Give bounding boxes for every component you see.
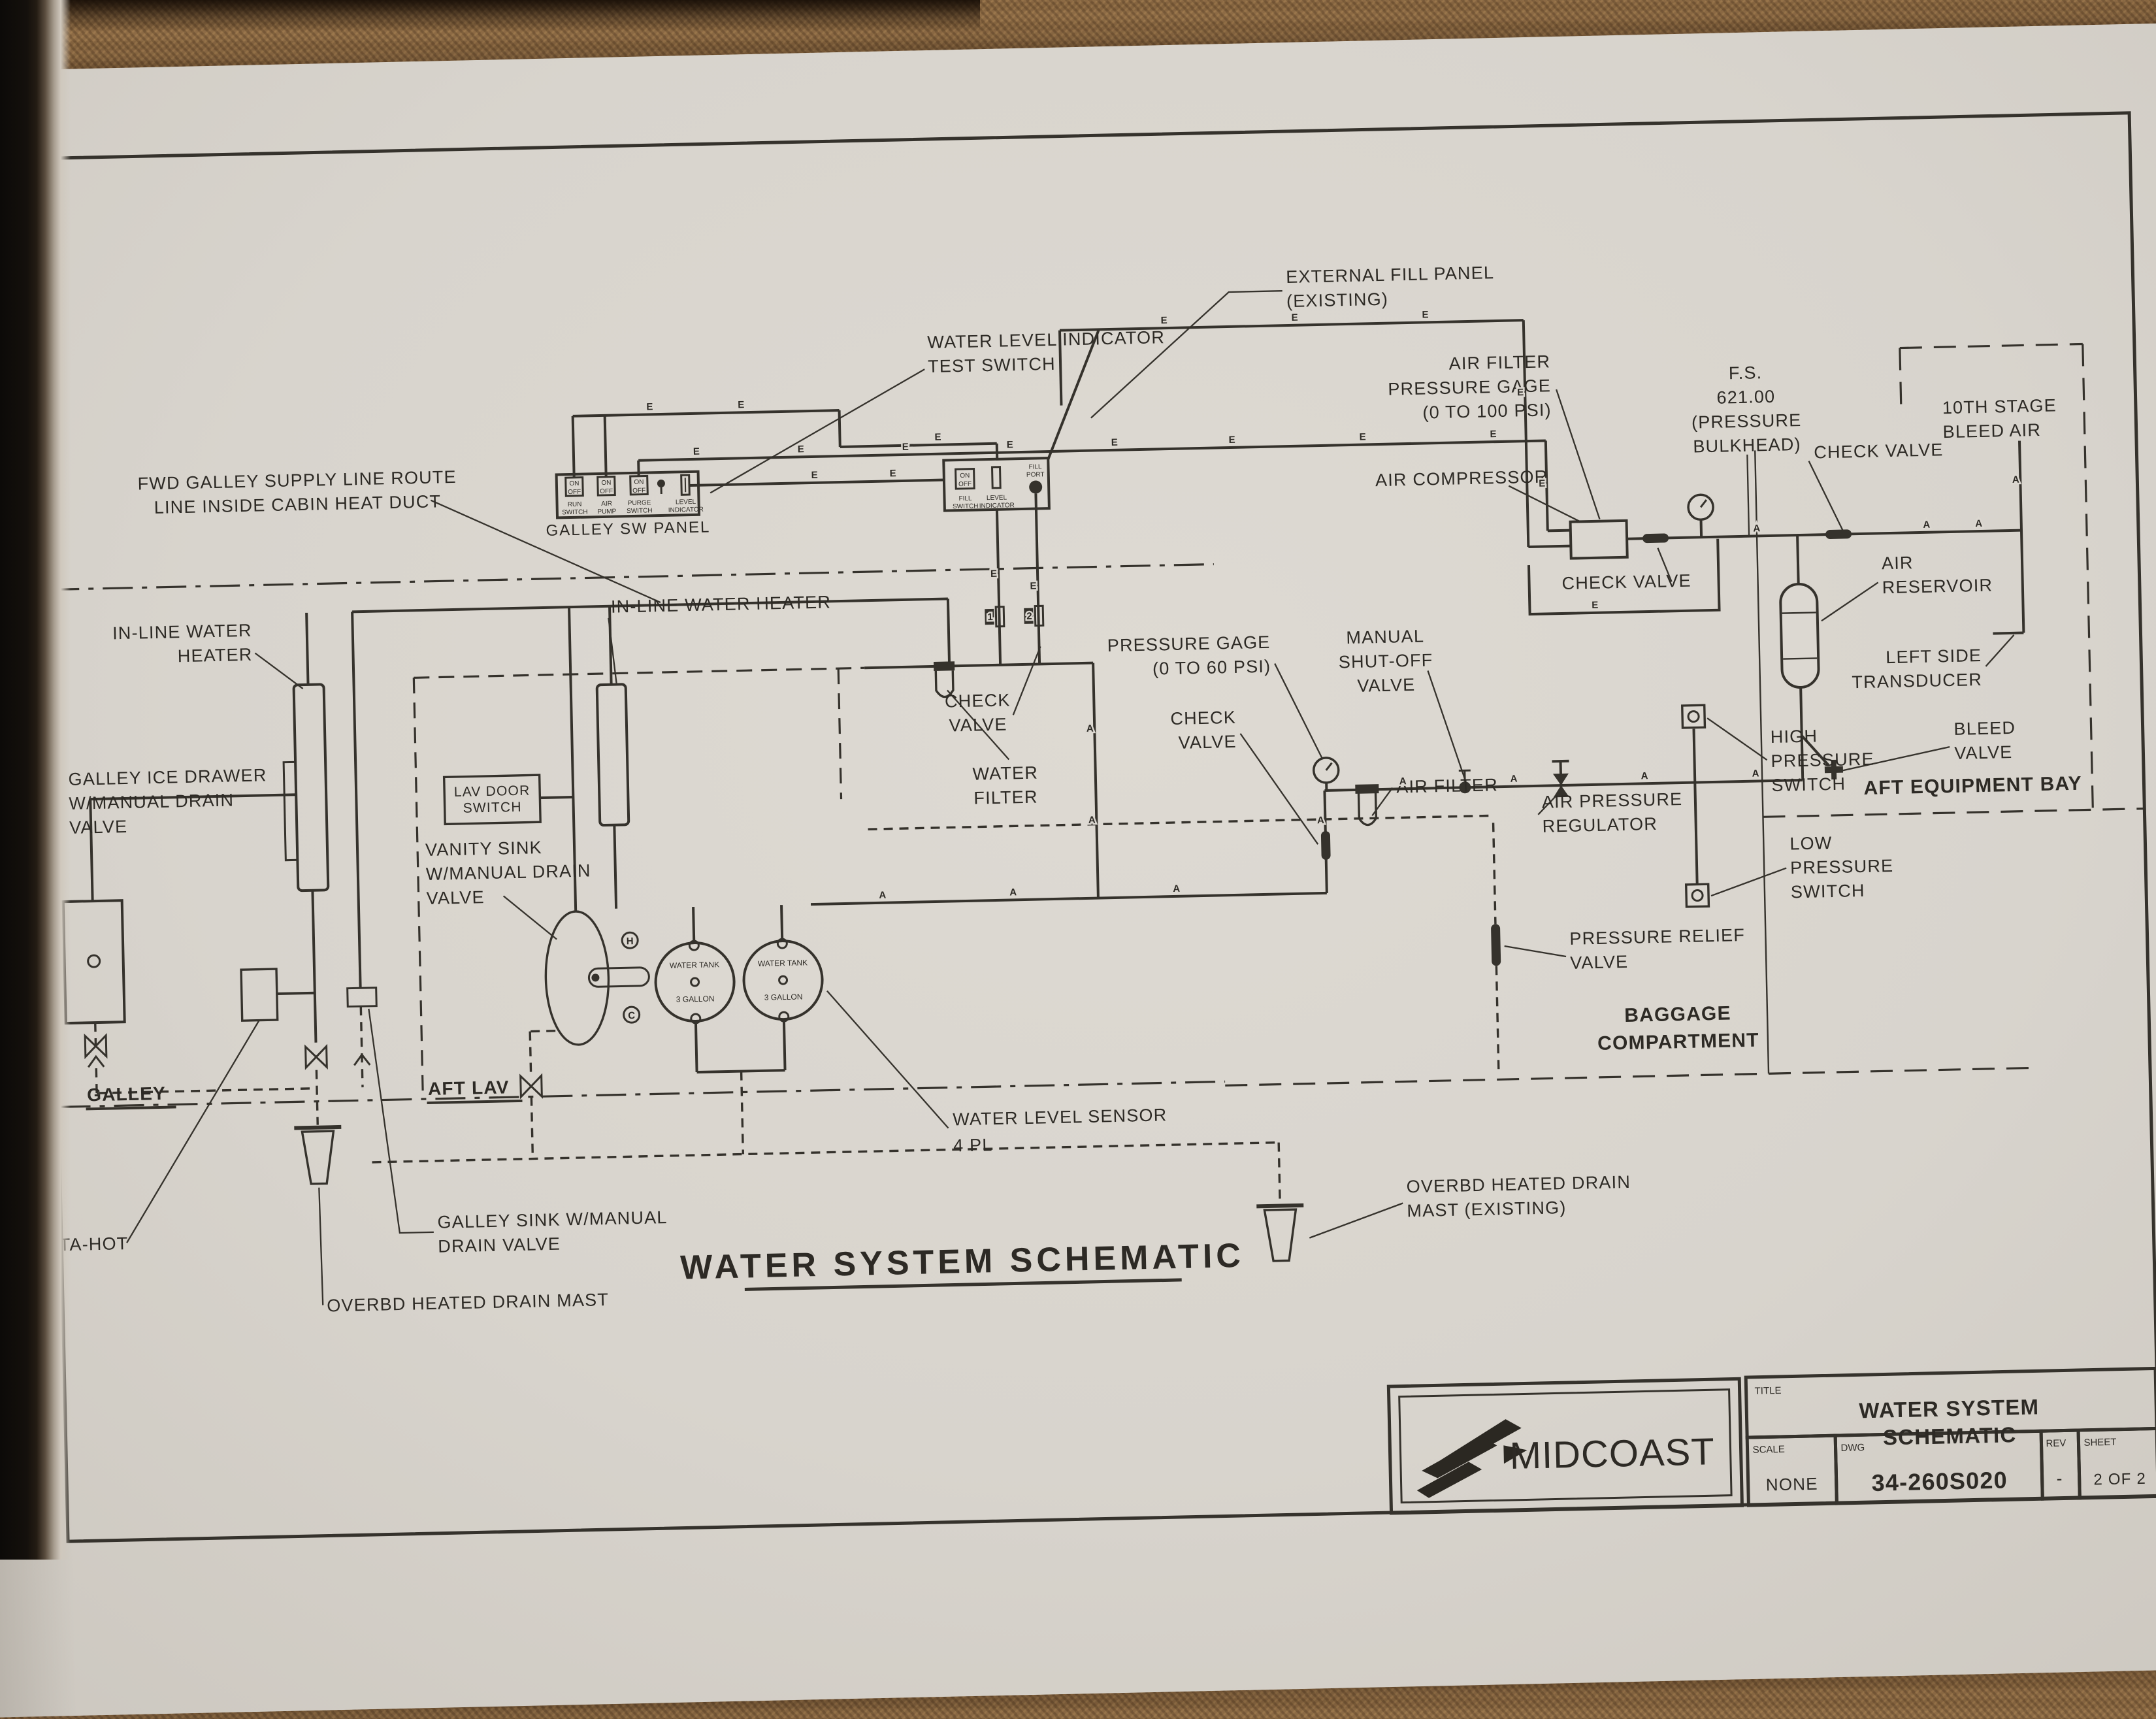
line-marker-E: E	[693, 446, 700, 457]
labels-layer: FWD GALLEY SUPPLY LINE ROUTELINE INSIDE …	[7, 249, 2146, 1536]
label-bleed-valve: BLEEDVALVE	[1953, 718, 2016, 763]
label-galley-ice-drawer: GALLEY ICE DRAWERW/MANUAL DRAINVALVE	[68, 765, 268, 838]
label-sw-run-onoff: ONOFF	[568, 480, 581, 496]
manual-drain-valve-icon[interactable]	[521, 1075, 542, 1097]
label-pressure-gage-60: PRESSURE GAGE(0 TO 60 PSI)	[1107, 632, 1271, 679]
label-galley-name: GALLEY	[87, 1083, 166, 1105]
label-aft-equipment-bay: AFT EQUIPMENT BAY	[1863, 773, 2082, 799]
line-marker-A: A	[1317, 815, 1324, 826]
line-marker-E: E	[990, 568, 997, 580]
check-valve-icon	[1825, 529, 1852, 539]
line-marker-E: E	[811, 470, 818, 481]
line-marker-E: E	[1539, 478, 1545, 489]
drain-lines	[91, 815, 1501, 1232]
line-marker-E: E	[1291, 312, 1298, 323]
label-check-valve-center: CHECKVALVE	[945, 690, 1011, 735]
line-marker-E: E	[1517, 387, 1524, 398]
label-tb-scale-value: NONE	[1765, 1474, 1818, 1495]
galley-ice-drawer-box	[63, 900, 125, 1023]
line-marker-1: 1	[987, 612, 993, 623]
label-in-line-water-heater-galley: IN-LINE WATERHEATER	[112, 621, 253, 668]
label-tb-sheet-label: SHEET	[2083, 1437, 2116, 1449]
drawing-sheet: FWD GALLEY SUPPLY LINE ROUTELINE INSIDE …	[0, 22, 2156, 1718]
label-tenth-stage-bleed-air: 10TH STAGEBLEED AIR	[1942, 395, 2057, 442]
label-in-line-water-heater-aftlav: IN-LINE WATER HEATER	[611, 592, 832, 616]
air-equipment	[930, 491, 1861, 978]
label-fill-port-label: FILLPORT	[1026, 463, 1045, 479]
label-tb-dwg-label: DWG	[1840, 1442, 1865, 1454]
water-lines	[84, 493, 1102, 1085]
label-tb-dwg-value: 34-260S020	[1871, 1466, 2008, 1496]
line-marker-E: E	[1160, 315, 1167, 326]
label-fill-switch-label: FILLSWITCH	[953, 495, 979, 510]
label-sw-run-label: RUNSWITCH	[562, 500, 588, 516]
line-marker-A: A	[1641, 770, 1648, 781]
line-marker-2: 2	[1026, 611, 1032, 622]
label-tb-title: WATER SYSTEMSCHEMATIC	[1859, 1394, 2040, 1450]
line-marker-A: A	[1009, 887, 1017, 898]
air-reservoir-tank	[1780, 583, 1819, 687]
line-marker-A: A	[1752, 768, 1759, 779]
line-marker-E: E	[1111, 437, 1118, 448]
line-marker-E: E	[738, 399, 744, 410]
label-galley-sink: GALLEY SINK W/MANUALDRAIN VALVE	[437, 1207, 668, 1256]
label-check-valve-top-right: CHECK VALVE	[1814, 440, 1944, 462]
label-air-reservoir: AIRRESERVOIR	[1882, 551, 1993, 598]
line-marker-E: E	[1490, 429, 1496, 440]
schematic-drawing: FWD GALLEY SUPPLY LINE ROUTELINE INSIDE …	[0, 0, 2156, 1583]
label-tb-scale-label: SCALE	[1752, 1444, 1785, 1456]
fill-level-indicator-bar	[992, 467, 1001, 488]
line-marker-E: E	[889, 468, 896, 479]
line-marker-A: A	[2012, 474, 2019, 485]
line-marker-H: H	[627, 936, 634, 947]
line-marker-E: E	[902, 442, 909, 453]
fill-port-icon[interactable]	[1029, 480, 1042, 493]
low-pressure-switch-icon	[1686, 884, 1709, 907]
water-tank-1	[655, 942, 735, 1023]
label-tb-rev-label: REV	[2046, 1437, 2066, 1449]
label-overbd-heated-drain-mast: OVERBD HEATED DRAIN MAST	[327, 1290, 609, 1315]
check-valve-icon	[1321, 831, 1331, 860]
line-marker-E: E	[1422, 309, 1428, 320]
label-check-valve-left: CHECKVALVE	[1170, 708, 1237, 753]
label-water-filter: WATERFILTER	[972, 763, 1039, 808]
label-left-side-transducer: LEFT SIDETRANSDUCER	[1851, 646, 1982, 692]
vent-arrow-icon	[88, 1056, 104, 1068]
label-sw-purge-label: PURGESWITCH	[627, 499, 653, 515]
line-marker-A: A	[1086, 723, 1094, 734]
label-galley-sw-panel: GALLEY SW PANEL	[546, 518, 710, 539]
label-tb-rev-value: -	[2056, 1469, 2063, 1488]
line-marker-E: E	[1007, 439, 1013, 450]
label-air-compressor: AIR COMPRESSOR	[1375, 467, 1548, 490]
label-water-level-indicator-test-switch: WATER LEVEL INDICATORTEST SWITCH	[927, 327, 1166, 376]
label-external-fill-panel: EXTERNAL FILL PANEL(EXISTING)	[1286, 263, 1495, 311]
label-manual-shut-off-valve: MANUALSHUT-OFFVALVE	[1338, 626, 1434, 696]
label-low-pressure-switch: LOWPRESSURESWITCH	[1789, 832, 1894, 902]
line-marker-E: E	[1228, 434, 1235, 446]
label-air-pressure-regulator: AIR PRESSUREREGULATOR	[1542, 789, 1684, 836]
test-switch-lamp-icon[interactable]	[657, 480, 665, 487]
label-tb-sheet-value: 2 OF 2	[2093, 1470, 2146, 1489]
air-pressure-regulator-icon[interactable]	[1553, 774, 1569, 786]
air-filter-bowl-icon	[1358, 789, 1376, 825]
line-marker-A: A	[879, 890, 886, 901]
line-marker-A: A	[1173, 883, 1180, 894]
line-marker-E: E	[934, 432, 941, 443]
label-tb-title-label: TITLE	[1754, 1385, 1781, 1397]
in-line-water-heater-2	[597, 684, 629, 825]
water-tank-2	[743, 940, 823, 1021]
line-marker-A: A	[1753, 523, 1760, 534]
label-pressure-relief-valve: PRESSURE RELIEFVALVE	[1569, 925, 1746, 973]
air-compressor-box	[1571, 521, 1627, 559]
label-air-filter-pressure-gage: AIR FILTERPRESSURE GAGE(0 TO 100 PSI)	[1387, 352, 1552, 423]
label-fs-621-pressure-bulkhead: F.S.621.00(PRESSUREBULKHEAD)	[1690, 362, 1802, 457]
label-fill-onoff: ONOFF	[958, 472, 972, 488]
label-overbd-heated-drain-mast-existing: OVERBD HEATED DRAINMAST (EXISTING)	[1406, 1172, 1631, 1220]
line-marker-E: E	[1359, 431, 1365, 442]
line-marker-C: C	[628, 1010, 635, 1021]
line-marker-A: A	[1975, 518, 1982, 529]
label-check-valve-compressor: CHECK VALVE	[1561, 571, 1691, 593]
label-sw-air-onoff: ONOFF	[600, 480, 613, 495]
line-marker-E: E	[798, 444, 804, 455]
high-pressure-switch-icon	[1682, 705, 1705, 728]
line-marker-A: A	[1399, 776, 1407, 787]
line-marker-E: E	[646, 401, 653, 412]
line-marker-E: E	[1592, 600, 1598, 611]
line-marker-A: A	[1088, 815, 1096, 826]
pressure-relief-valve-icon	[1491, 924, 1501, 966]
galley-sink-icon	[348, 988, 377, 1007]
label-water-level-sensor: WATER LEVEL SENSOR4 PL	[953, 1105, 1168, 1155]
line-marker-E: E	[1030, 581, 1036, 592]
label-fill-level-label: LEVELINDICATOR	[979, 494, 1015, 510]
label-sw-air-label: AIRPUMP	[597, 500, 617, 516]
line-marker-A: A	[1510, 774, 1517, 785]
label-fwd-galley-route: FWD GALLEY SUPPLY LINE ROUTELINE INSIDE …	[137, 467, 457, 518]
label-baggage-compartment: BAGGAGECOMPARTMENT	[1597, 1002, 1759, 1055]
label-lav-door-switch: LAV DOORSWITCH	[454, 783, 531, 816]
vanity-sink-bowl	[544, 911, 610, 1045]
label-high-pressure-switch: HIGHPRESSURESWITCH	[1770, 725, 1874, 795]
photo-of-schematic-page: { "document": { "main_title": "WATER SYS…	[0, 0, 2156, 1560]
drain-mast-left	[294, 1127, 342, 1185]
book-spine	[0, 0, 71, 1560]
insta-hot-unit	[241, 969, 278, 1021]
label-aft-lav-name: AFT LAV	[428, 1077, 510, 1099]
label-sw-purge-onoff: ONOFF	[632, 479, 646, 495]
label-air-filter: AIR FILTER	[1396, 775, 1498, 796]
line-marker-A: A	[1923, 519, 1930, 531]
in-line-water-heater-1	[294, 684, 329, 891]
label-tb-brand: MIDCOAST	[1509, 1430, 1715, 1477]
manual-drain-valve-icon[interactable]	[306, 1046, 327, 1068]
check-valve-icon	[1642, 533, 1669, 543]
label-vanity-sink: VANITY SINKW/MANUAL DRAINVALVE	[425, 836, 592, 908]
drain-mast-right	[1256, 1205, 1305, 1262]
